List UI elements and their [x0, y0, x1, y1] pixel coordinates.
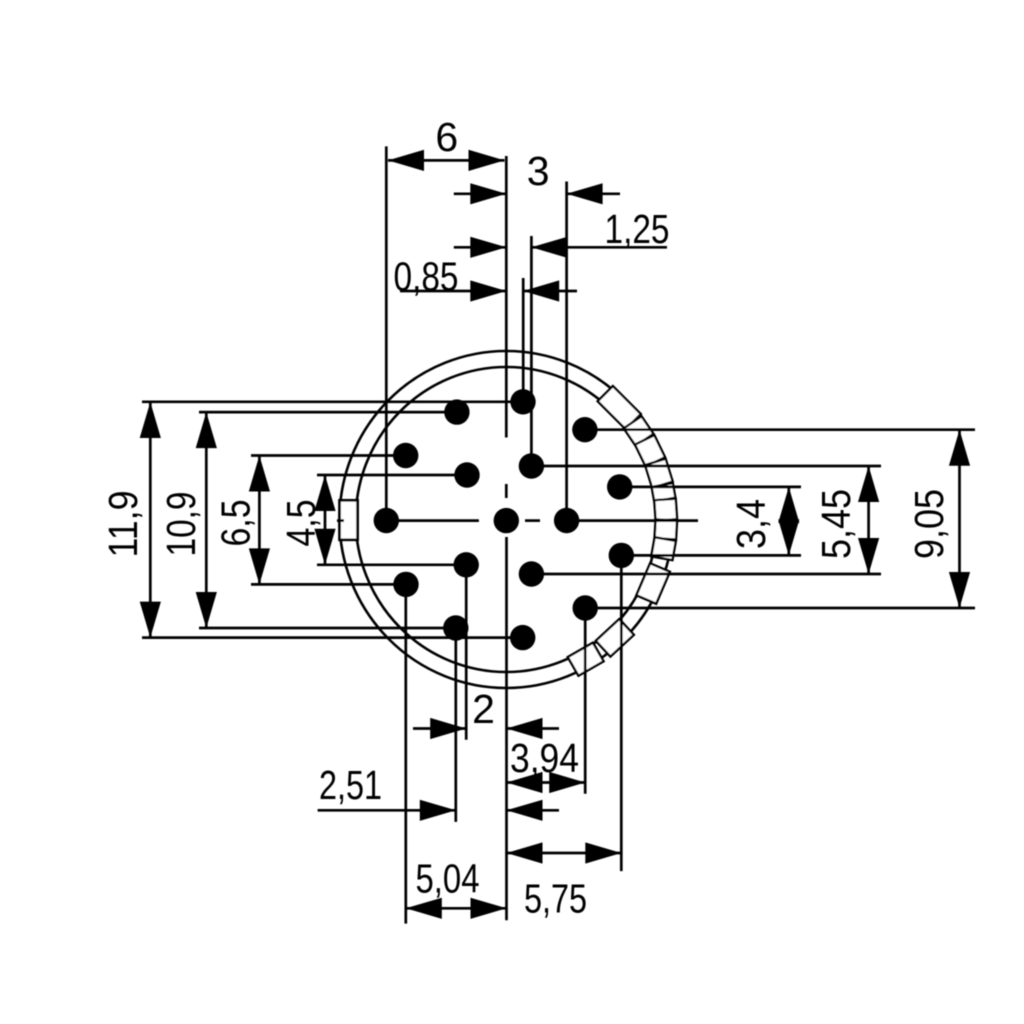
svg-text:3,4: 3,4	[728, 499, 774, 549]
svg-text:11,9: 11,9	[100, 491, 146, 558]
svg-text:5,45: 5,45	[813, 489, 859, 559]
svg-text:3: 3	[527, 148, 550, 194]
svg-text:6,5: 6,5	[212, 500, 258, 547]
svg-text:6: 6	[435, 114, 458, 160]
svg-text:2: 2	[472, 686, 495, 732]
svg-text:9,05: 9,05	[906, 489, 952, 559]
svg-text:4,5: 4,5	[278, 500, 324, 547]
svg-text:1,25: 1,25	[605, 206, 670, 252]
svg-text:10,9: 10,9	[158, 492, 204, 557]
svg-text:0,85: 0,85	[394, 253, 459, 299]
svg-text:5,04: 5,04	[416, 855, 480, 901]
svg-text:3,94: 3,94	[510, 735, 579, 781]
svg-text:2,51: 2,51	[319, 762, 382, 808]
svg-text:5,75: 5,75	[524, 875, 587, 921]
